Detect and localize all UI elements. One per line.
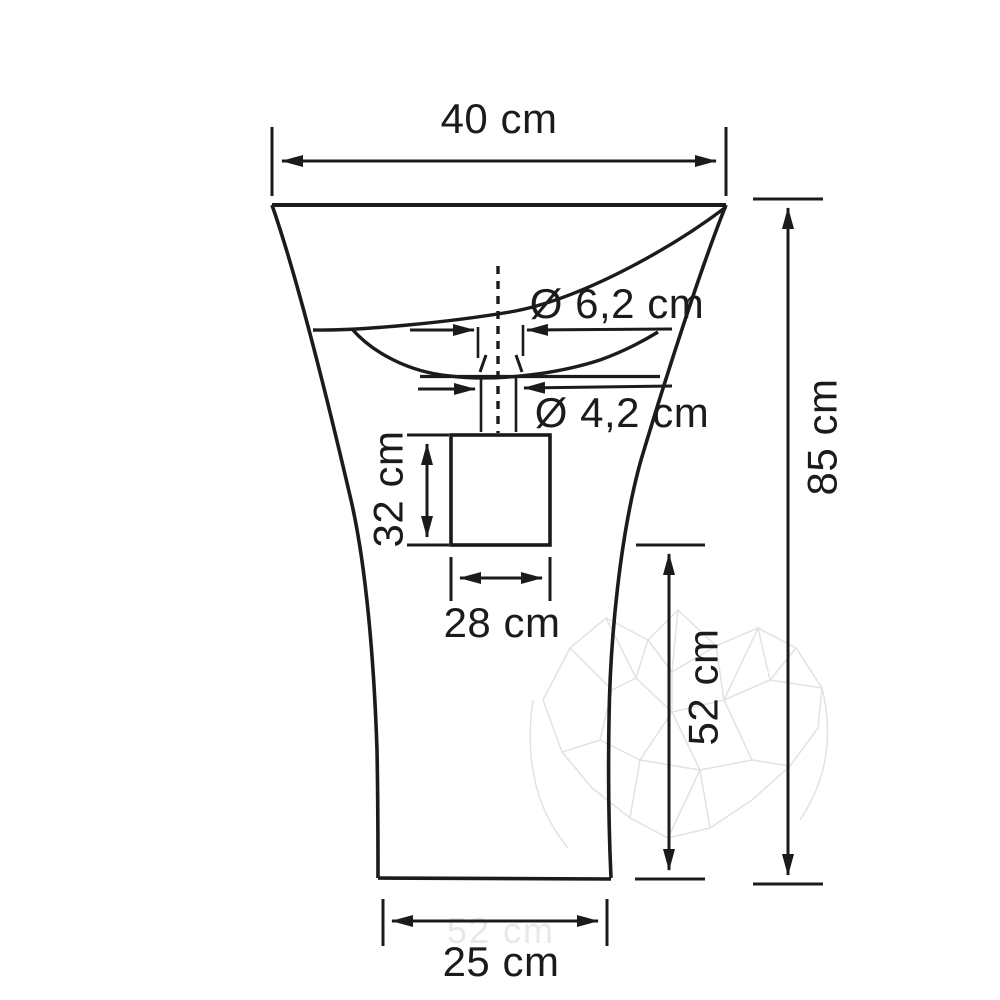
dim-cutout-height: 32 cm (365, 431, 449, 548)
dim-faucet-hole: Ø 6,2 cm (410, 280, 704, 372)
dim-cutout-width: 28 cm (444, 557, 561, 646)
dim-overall-width: 40 cm (272, 95, 726, 196)
dim-label-overall-width: 40 cm (441, 95, 558, 142)
sink-base-edge (378, 878, 611, 879)
dim-arrow-line (527, 329, 672, 330)
dim-basin-height: 52 cm (635, 545, 727, 879)
dim-drain-hole: Ø 4,2 cm (418, 377, 709, 436)
sink-left-outline (272, 205, 378, 878)
diagram-canvas: 52 cm 40 cm Ø 6,2 cm Ø 4,2 cm (0, 0, 1000, 1000)
dim-label-base-width: 25 cm (443, 938, 560, 985)
dim-label-cutout-width: 28 cm (444, 599, 561, 646)
witness-slant-tick (480, 355, 486, 372)
dim-label-overall-height: 85 cm (799, 379, 846, 496)
dim-label-drain-hole: Ø 4,2 cm (535, 389, 709, 436)
drain-cutout-box (451, 435, 550, 545)
dim-arrow-line (524, 386, 672, 388)
witness-slant-tick (516, 355, 522, 372)
dim-overall-height: 85 cm (753, 199, 846, 884)
dim-label-faucet-hole: Ø 6,2 cm (530, 280, 704, 327)
watermark-mesh: 52 cm (447, 610, 828, 951)
dim-label-basin-height: 52 cm (680, 629, 727, 746)
washbasin-dimension-drawing: 52 cm 40 cm Ø 6,2 cm Ø 4,2 cm (0, 0, 1000, 1000)
basin-rim-curve (352, 329, 658, 378)
dim-label-cutout-height: 32 cm (365, 431, 412, 548)
